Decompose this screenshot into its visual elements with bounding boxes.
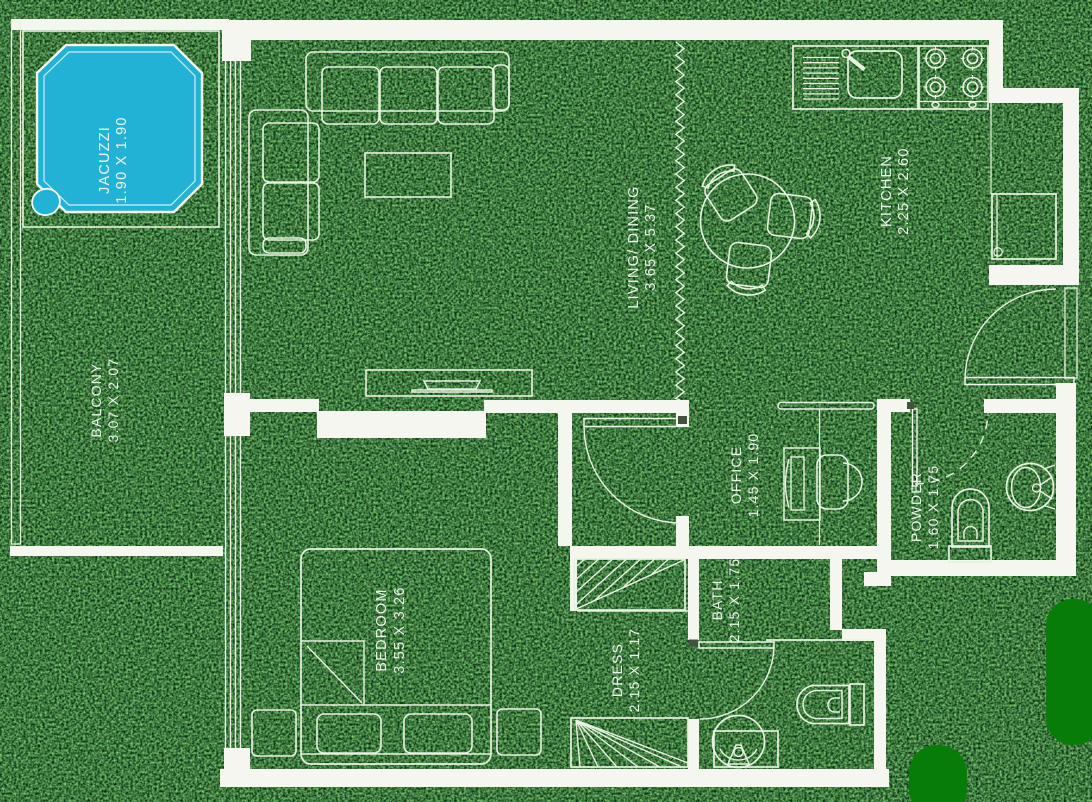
svg-text:BALCONY: BALCONY	[88, 362, 104, 437]
svg-text:KITCHEN: KITCHEN	[879, 155, 895, 227]
svg-text:JACUZZI: JACUZZI	[97, 126, 113, 194]
svg-text:DRESS: DRESS	[609, 643, 625, 697]
svg-text:1.90 X 1.90: 1.90 X 1.90	[114, 116, 130, 203]
svg-text:1.60 X 1.75: 1.60 X 1.75	[925, 465, 941, 550]
svg-text:3.55 X 3.26: 3.55 X 3.26	[392, 586, 408, 673]
svg-text:BATH: BATH	[709, 579, 725, 620]
svg-text:LIVING/ DINING: LIVING/ DINING	[626, 185, 642, 308]
svg-text:2.15 X 1.17: 2.15 X 1.17	[626, 628, 642, 713]
svg-text:1.45 X 1.90: 1.45 X 1.90	[745, 433, 761, 518]
svg-text:3.07 X 2.07: 3.07 X 2.07	[105, 358, 121, 443]
svg-text:OFFICE: OFFICE	[728, 446, 744, 505]
svg-text:2.25 X 2.60: 2.25 X 2.60	[896, 147, 912, 234]
svg-text:2.15 X 1.75: 2.15 X 1.75	[726, 558, 742, 643]
svg-text:3.65 X 5.37: 3.65 X 5.37	[643, 203, 659, 290]
svg-text:POWDER: POWDER	[908, 472, 924, 542]
svg-text:BEDROOM: BEDROOM	[374, 588, 390, 671]
